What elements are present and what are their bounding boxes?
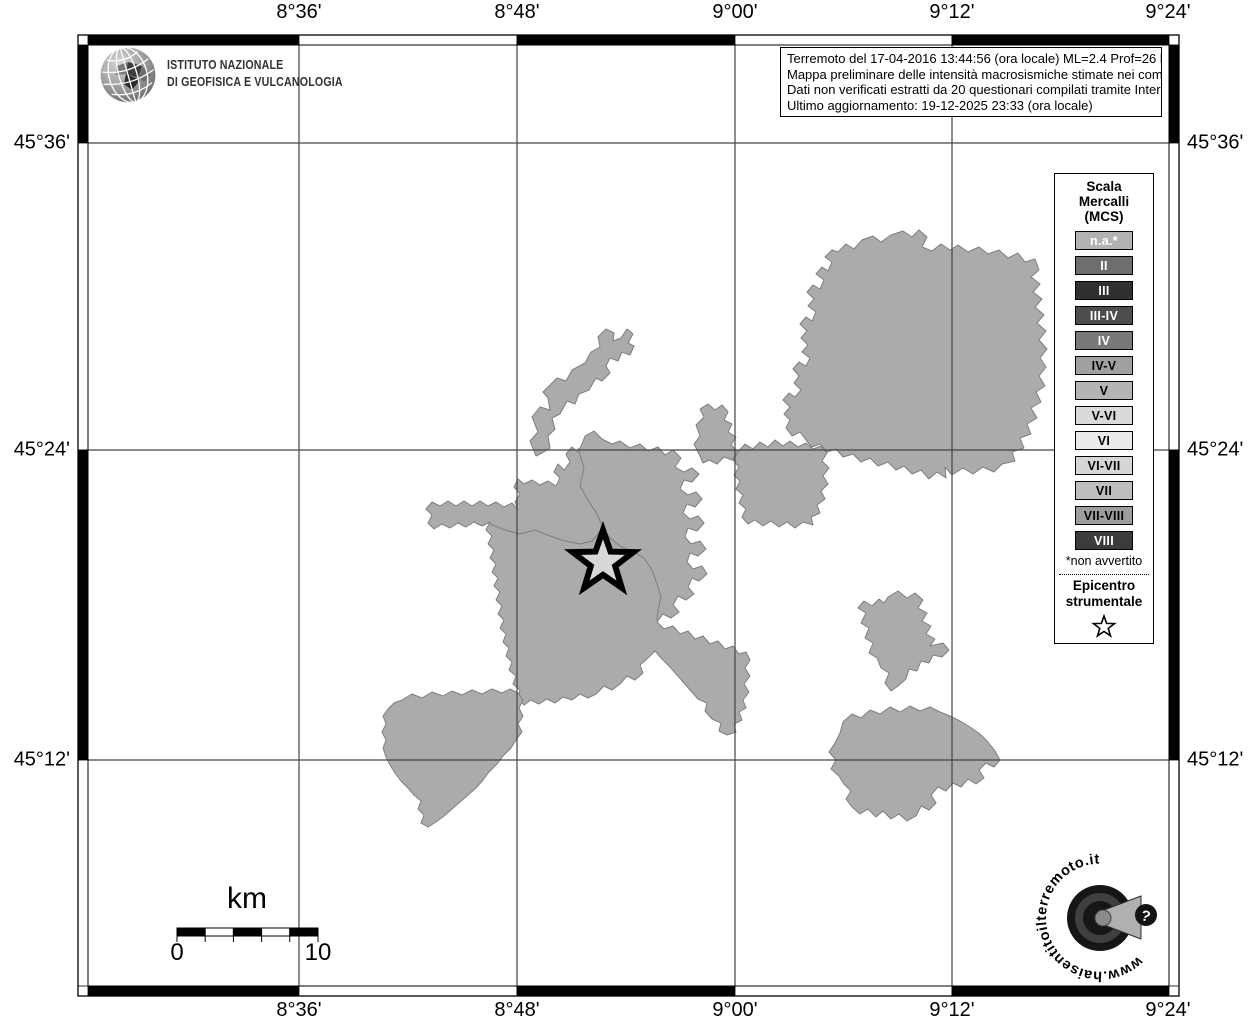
- legend-item-viii: VIII: [1075, 531, 1133, 550]
- axis-label-bottom-1: 8°36': [276, 999, 321, 1022]
- frame-band-right-4: [1169, 760, 1179, 986]
- legend-item-vii: VII: [1075, 481, 1133, 500]
- municipality-polygon-7: [858, 591, 949, 691]
- legend-item-ii: II: [1075, 256, 1133, 275]
- frame-band-bottom-5: [952, 986, 1169, 996]
- ingv-logo-text: ISTITUTO NAZIONALE DI GEOFISICA E VULCAN…: [167, 57, 343, 91]
- axis-label-bottom-3: 9°00': [712, 999, 757, 1022]
- axis-label-right-2: 45°24': [1187, 439, 1243, 462]
- municipality-polygon-4: [382, 689, 523, 827]
- ingv-line1: ISTITUTO NAZIONALE: [167, 57, 343, 74]
- legend-title-line2: Mercalli: [1079, 194, 1129, 209]
- scalebar-segment-4: [262, 928, 290, 936]
- frame-band-top-3: [517, 35, 735, 45]
- legend-item-vii-viii: VII-VIII: [1075, 506, 1133, 525]
- legend-item-iii-iv: III-IV: [1075, 306, 1133, 325]
- legend-item-v-vi: V-VI: [1075, 406, 1133, 425]
- ingv-logo: ISTITUTO NAZIONALE DI GEOFISICA E VULCAN…: [98, 44, 381, 104]
- legend-title: Scala Mercalli (MCS): [1079, 179, 1129, 224]
- legend-item-vi: VI: [1075, 431, 1133, 450]
- municipality-polygons: [382, 230, 1047, 827]
- frame-band-top-5: [952, 35, 1169, 45]
- frame-band-bottom-3: [517, 986, 735, 996]
- legend-item-iii: III: [1075, 281, 1133, 300]
- scalebar-segment-5: [290, 928, 318, 936]
- scalebar-start-label: 0: [170, 939, 183, 967]
- axis-label-bottom-5: 9°24': [1145, 999, 1190, 1022]
- municipality-polygon-8: [829, 706, 1000, 821]
- haisentitoilterremoto-logo: ? www.haisentitoilterremoto.it: [1034, 852, 1157, 984]
- frame-band-left-2: [78, 143, 88, 450]
- municipality-polygon-5: [694, 404, 738, 464]
- legend-panel: Scala Mercalli (MCS) n.a.*IIIIIIII-IVIVI…: [1054, 173, 1154, 644]
- legend-epicenter-line2: strumentale: [1066, 594, 1143, 610]
- axis-label-top-5: 9°24': [1145, 1, 1190, 24]
- info-line-3: Dati non verificati estratti da 20 quest…: [787, 82, 1155, 98]
- event-info-box: Terremoto del 17-04-2016 13:44:56 (ora l…: [780, 47, 1162, 117]
- legend-footnote: *non avvertito: [1066, 554, 1142, 568]
- scalebar-end-label: 10: [305, 939, 332, 967]
- municipality-polygon-6: [733, 440, 829, 528]
- legend-item-iv: IV: [1075, 331, 1133, 350]
- legend-items: n.a.*IIIIIIII-IVIVIV-VVV-VIVIVI-VIIVIIVI…: [1075, 231, 1133, 550]
- axis-label-top-3: 9°00': [712, 1, 757, 24]
- axis-label-right-1: 45°36': [1187, 132, 1243, 155]
- legend-title-line1: Scala: [1079, 179, 1129, 194]
- legend-title-line3: (MCS): [1079, 209, 1129, 224]
- frame-band-bottom-2: [299, 986, 517, 996]
- info-line-1: Terremoto del 17-04-2016 13:44:56 (ora l…: [787, 51, 1155, 67]
- frame-band-top-4: [735, 35, 952, 45]
- axis-label-top-1: 8°36': [276, 1, 321, 24]
- legend-divider: [1059, 574, 1149, 575]
- axis-label-left-2: 45°24': [0, 439, 70, 462]
- legend-epicenter-line1: Epicentro: [1066, 578, 1143, 594]
- frame-band-right-2: [1169, 143, 1179, 450]
- municipality-polygon-1: [530, 329, 634, 456]
- scalebar-unit-label: km: [227, 882, 267, 916]
- frame-band-left-1: [78, 45, 88, 143]
- legend-item-iv-v: IV-V: [1075, 356, 1133, 375]
- ingv-globe-icon: [98, 44, 158, 104]
- scalebar-segment-3: [233, 928, 261, 936]
- legend-epicenter-star-icon: [1090, 612, 1118, 640]
- legend-star: [1094, 616, 1115, 636]
- scalebar-segment-1: [177, 928, 205, 936]
- frame-band-left-4: [78, 760, 88, 986]
- axis-label-bottom-4: 9°12': [929, 999, 974, 1022]
- municipality-polygon-2: [783, 230, 1047, 479]
- legend-item-v: V: [1075, 381, 1133, 400]
- axis-label-left-3: 45°12': [0, 749, 70, 772]
- axis-label-top-4: 9°12': [929, 1, 974, 24]
- info-line-4: Ultimo aggiornamento: 19-12-2025 23:33 (…: [787, 98, 1155, 114]
- scalebar-segment-2: [205, 928, 233, 936]
- ingv-line2: DI GEOFISICA E VULCANOLOGIA: [167, 74, 343, 91]
- frame-band-bottom-4: [735, 986, 952, 996]
- axis-label-right-3: 45°12': [1187, 749, 1243, 772]
- axis-label-bottom-2: 8°48': [494, 999, 539, 1022]
- legend-item-vi-vii: VI-VII: [1075, 456, 1133, 475]
- macroseismic-map-page: ? www.haisentitoilterremoto.it 8°36' 8°4…: [0, 0, 1257, 1024]
- frame-band-bottom-1: [88, 986, 299, 996]
- frame-band-right-1: [1169, 45, 1179, 143]
- info-line-2: Mappa preliminare delle intensità macros…: [787, 67, 1155, 83]
- legend-item-n-a-: n.a.*: [1075, 231, 1133, 250]
- scale-bar: [177, 928, 318, 942]
- axis-label-left-1: 45°36': [0, 132, 70, 155]
- watermark-disc-center: [1095, 910, 1111, 926]
- axis-label-top-2: 8°48': [494, 1, 539, 24]
- legend-epicenter-title: Epicentro strumentale: [1066, 578, 1143, 609]
- frame-band-left-3: [78, 450, 88, 760]
- frame-band-right-3: [1169, 450, 1179, 760]
